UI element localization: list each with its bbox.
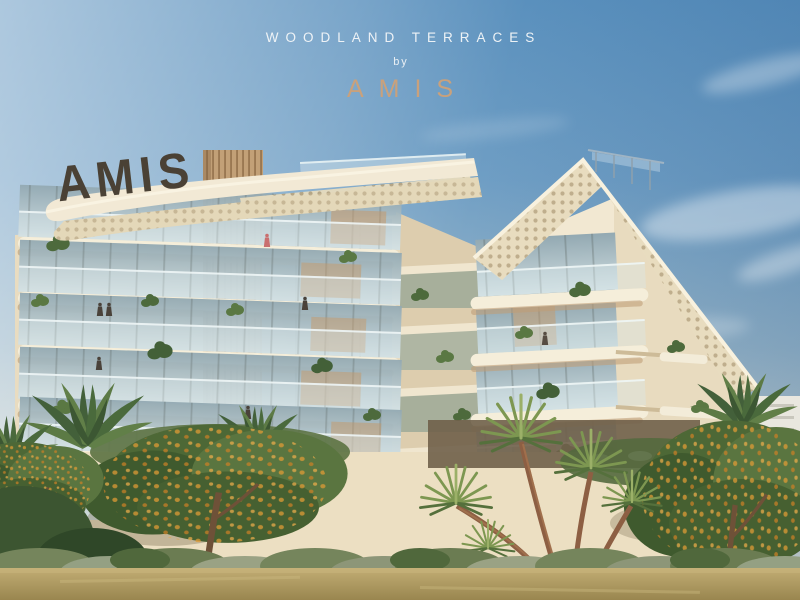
dry-grass <box>0 568 800 600</box>
header-text-block: WOODLAND TERRACES by AMIS <box>0 30 800 104</box>
project-title: WOODLAND TERRACES <box>0 30 800 45</box>
byline: by <box>0 56 800 68</box>
brand-name: AMIS <box>0 75 800 104</box>
hero-rendering: WOODLAND TERRACES by AMIS AMIS <box>0 0 800 600</box>
